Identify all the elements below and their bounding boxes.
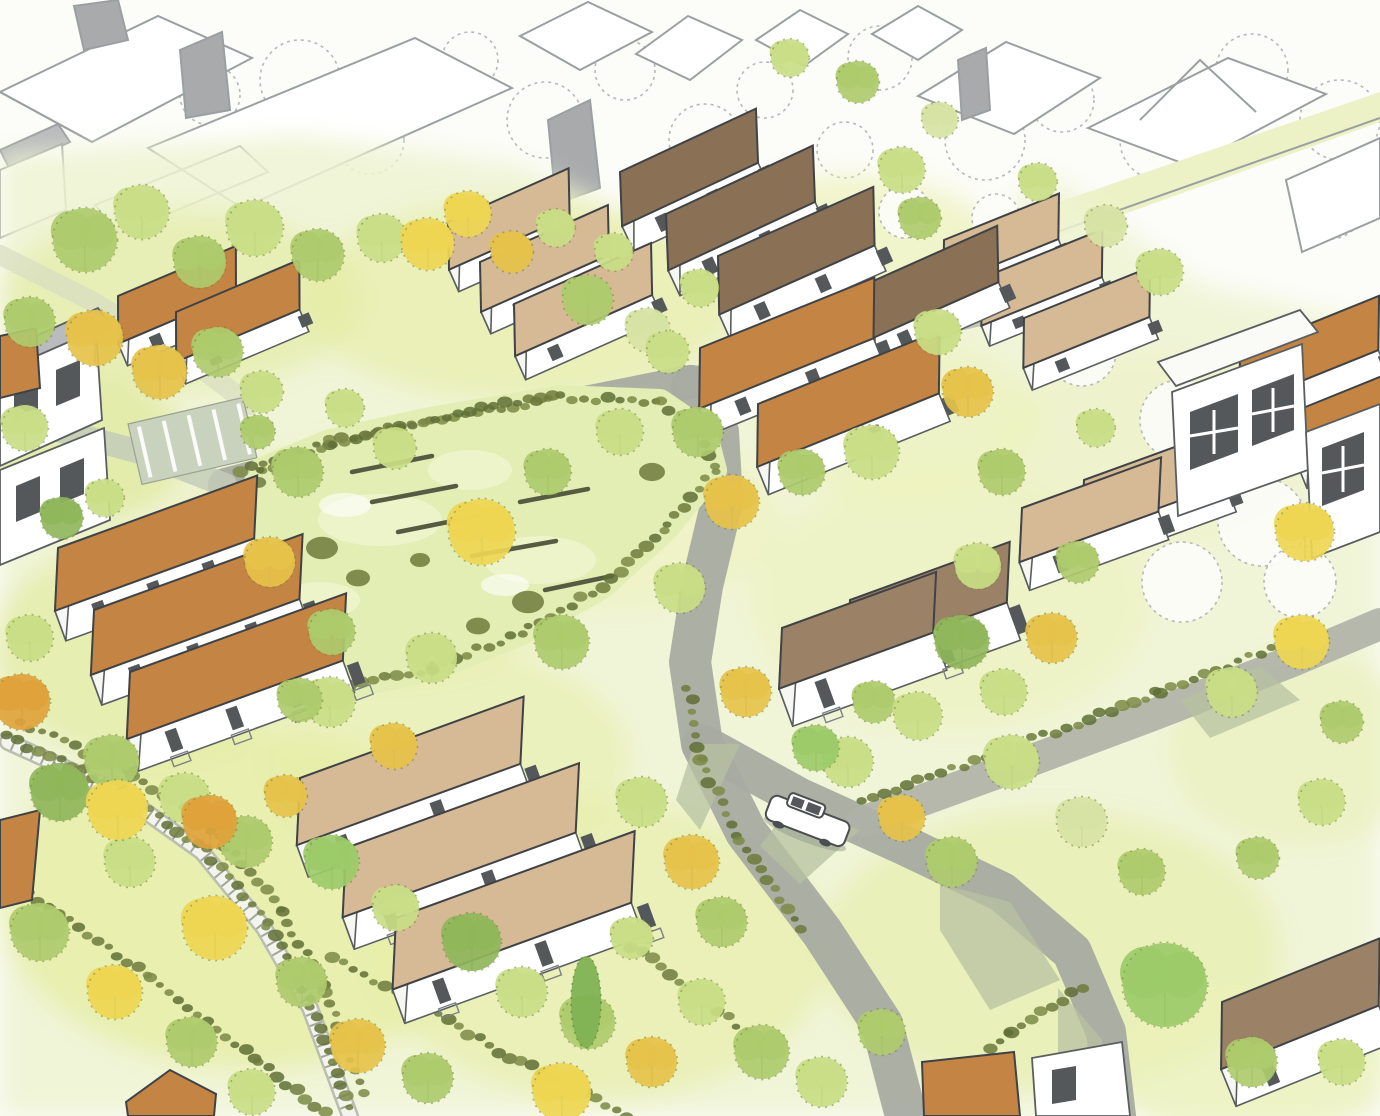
tree-canopy-lobe bbox=[1157, 254, 1182, 279]
hedge-dot bbox=[1177, 680, 1190, 689]
hedge-dot bbox=[251, 878, 263, 887]
hedge-dot bbox=[1141, 696, 1150, 702]
hedge-dot bbox=[156, 982, 164, 988]
hedge-dot bbox=[360, 971, 369, 977]
hedge-dot bbox=[216, 862, 229, 871]
tree-canopy-lobe bbox=[937, 106, 957, 126]
tree-canopy-lobe bbox=[813, 730, 838, 755]
green-hedge-dot bbox=[595, 582, 610, 593]
tree-canopy-lobe bbox=[879, 1014, 904, 1039]
green-hedge-dot bbox=[659, 527, 669, 534]
green-hedge-dot bbox=[588, 591, 598, 598]
tree-canopy-lobe bbox=[558, 1069, 590, 1101]
hedge-dot bbox=[38, 728, 46, 734]
green-hedge-dot bbox=[462, 652, 473, 660]
hedge-dot bbox=[1056, 997, 1069, 1006]
green-hedge-dot bbox=[638, 399, 649, 407]
hedge-dot bbox=[261, 924, 270, 931]
tree-canopy-lobe bbox=[329, 614, 354, 639]
green-hedge-dot bbox=[566, 396, 577, 404]
hedge-dot bbox=[324, 999, 335, 1007]
hedge-dot bbox=[681, 685, 691, 692]
lawn-white-patch bbox=[319, 493, 371, 517]
tree-canopy-lobe bbox=[477, 506, 513, 542]
tree-canopy-lobe bbox=[1339, 1044, 1364, 1069]
hedge-dot bbox=[49, 731, 58, 738]
hedge-dot bbox=[1060, 724, 1072, 733]
hedge-dot bbox=[692, 754, 708, 765]
hedge-dot bbox=[276, 907, 290, 917]
green-hedge-dot bbox=[579, 395, 589, 402]
hedge-dot bbox=[545, 390, 559, 400]
shrub bbox=[639, 463, 665, 481]
green-hedge-dot bbox=[621, 557, 635, 567]
hedge-dot bbox=[287, 931, 296, 937]
hedge-dot bbox=[182, 1004, 193, 1012]
green-hedge-dot bbox=[518, 630, 528, 637]
hedge-dot bbox=[947, 764, 956, 770]
hedge-dot bbox=[60, 737, 69, 744]
hedge-dot bbox=[645, 952, 660, 963]
tree-canopy-lobe bbox=[27, 620, 52, 645]
tree-canopy-lobe bbox=[251, 206, 282, 237]
hedge-dot bbox=[245, 461, 258, 471]
tree-canopy-lobe bbox=[787, 43, 808, 64]
hedge-dot bbox=[164, 989, 174, 996]
hedge-dot bbox=[1165, 682, 1177, 691]
sketch-tree bbox=[1142, 542, 1222, 622]
hedge-dot bbox=[339, 1090, 354, 1101]
hedge-dot bbox=[1050, 729, 1063, 738]
green-hedge-dot bbox=[601, 392, 616, 403]
hedge-dot bbox=[723, 1012, 735, 1020]
shrub bbox=[512, 591, 544, 613]
hedge-dot bbox=[269, 895, 280, 903]
tree-canopy-lobe bbox=[465, 196, 490, 221]
hedge-dot bbox=[485, 1042, 495, 1049]
green-hedge-dot bbox=[567, 602, 578, 610]
hedge-dot bbox=[1003, 1027, 1019, 1039]
hedge-dot bbox=[260, 885, 274, 895]
hedge-dot bbox=[1038, 730, 1048, 737]
green-hedge-dot bbox=[604, 573, 619, 584]
poplar-tree bbox=[571, 956, 601, 1048]
tree-canopy-lobe bbox=[393, 890, 418, 915]
hedge-dot bbox=[204, 856, 217, 866]
tree-canopy-lobe bbox=[468, 919, 500, 951]
hedge-dot bbox=[334, 1080, 347, 1089]
tree bbox=[531, 1062, 592, 1116]
hedge-dot bbox=[257, 910, 265, 916]
hedge-dot bbox=[369, 979, 378, 985]
lawn-light-patch bbox=[428, 450, 512, 490]
tree-canopy-lobe bbox=[342, 393, 363, 414]
hedge-dot bbox=[924, 773, 935, 781]
hedge-dot bbox=[590, 1093, 603, 1102]
hedge-dot bbox=[339, 438, 351, 446]
hedge-dot bbox=[890, 787, 902, 795]
hedge-dot bbox=[161, 821, 173, 830]
hedge-dot bbox=[689, 742, 704, 753]
hedge-dot bbox=[358, 1089, 369, 1097]
hedge-dot bbox=[791, 916, 799, 922]
hedge-dot bbox=[1064, 987, 1078, 997]
green-hedge-dot bbox=[662, 406, 676, 416]
tree-canopy-lobe bbox=[699, 984, 724, 1009]
hedge-dot bbox=[733, 836, 745, 845]
green-hedge-dot bbox=[573, 592, 587, 602]
hedge-dot bbox=[662, 969, 678, 980]
hedge-dot bbox=[349, 434, 363, 444]
tree-canopy-lobe bbox=[1139, 854, 1164, 879]
green-hedge-dot bbox=[497, 640, 505, 646]
bg-chimney-1 bbox=[74, 0, 128, 50]
hedge-dot bbox=[655, 963, 666, 971]
hedge-dot bbox=[303, 949, 313, 956]
hedge-dot bbox=[105, 944, 113, 950]
hedge-dot bbox=[1034, 1006, 1048, 1016]
tree-canopy-lobe bbox=[91, 316, 122, 347]
tree-canopy-lobe bbox=[545, 454, 570, 479]
tree-canopy-lobe bbox=[553, 213, 574, 234]
hedge-dot bbox=[1082, 714, 1097, 725]
hedge-dot bbox=[1256, 651, 1267, 659]
hedge-dot bbox=[968, 755, 982, 765]
tree-canopy-lobe bbox=[697, 273, 718, 294]
tree-canopy-lobe bbox=[1301, 509, 1333, 541]
hedge-dot bbox=[253, 1058, 264, 1066]
hedge-dot bbox=[1073, 722, 1084, 730]
hedge-dot bbox=[689, 720, 699, 727]
hedge-dot bbox=[56, 755, 66, 762]
hedge-dot bbox=[231, 881, 244, 890]
green-hedge-dot bbox=[505, 631, 516, 639]
bg-dormer-3 bbox=[958, 48, 990, 120]
green-hedge-dot bbox=[695, 486, 704, 493]
green-hedge-dot bbox=[379, 672, 391, 681]
hedge-dot bbox=[173, 996, 184, 1004]
green-hedge-dot bbox=[678, 503, 691, 513]
hedge-dot bbox=[220, 1033, 231, 1041]
tree-canopy-lobe bbox=[914, 697, 940, 723]
tree-canopy-lobe bbox=[799, 454, 824, 479]
hedge-dot bbox=[0, 731, 12, 740]
green-hedge-dot bbox=[700, 474, 710, 481]
tree-canopy-lobe bbox=[975, 548, 1000, 573]
hedge-dot bbox=[69, 740, 82, 749]
hedge-dot bbox=[688, 709, 697, 715]
tree-canopy-lobe bbox=[22, 410, 47, 435]
hedge-dot bbox=[263, 1063, 274, 1071]
hedge-dot bbox=[453, 409, 464, 417]
tree-canopy-lobe bbox=[255, 418, 274, 437]
hedge-dot bbox=[72, 923, 85, 932]
hedge-dot bbox=[292, 940, 304, 949]
tree-canopy-lobe bbox=[36, 909, 68, 941]
hedge-dot bbox=[523, 394, 535, 403]
shrub bbox=[346, 570, 370, 587]
hedge-dot bbox=[239, 1044, 254, 1055]
hedge-dot bbox=[327, 441, 338, 449]
hedge-dot bbox=[169, 827, 185, 838]
green-hedge-dot bbox=[663, 521, 672, 527]
hedge-dot bbox=[331, 1068, 345, 1078]
green-hedge-dot bbox=[389, 670, 404, 681]
hedge-dot bbox=[442, 414, 452, 421]
hedge-dot bbox=[718, 798, 729, 806]
hedge-dot bbox=[339, 959, 348, 966]
hedge-dot bbox=[281, 919, 293, 927]
hedge-dot bbox=[144, 973, 157, 983]
hedge-dot bbox=[700, 777, 715, 788]
hedge-dot bbox=[525, 1060, 540, 1071]
green-hedge-dot bbox=[524, 623, 533, 629]
hedge-dot bbox=[259, 460, 268, 466]
hedge-dot bbox=[236, 892, 249, 901]
hedge-dot bbox=[1189, 676, 1199, 683]
hedge-dot bbox=[474, 402, 488, 412]
hedge-dot bbox=[856, 797, 866, 804]
hedge-dot bbox=[1017, 1022, 1026, 1029]
hedge-dot bbox=[1244, 652, 1252, 658]
hedge-dot bbox=[934, 768, 947, 777]
tree-canopy-lobe bbox=[1001, 674, 1026, 699]
green-hedge-dot bbox=[630, 549, 643, 559]
hedge-dot bbox=[92, 937, 105, 946]
hedge-dot bbox=[155, 812, 164, 819]
orange-wedge-south bbox=[922, 1052, 1020, 1116]
hedge-dot bbox=[363, 432, 372, 438]
shrub bbox=[410, 553, 430, 567]
hedge-dot bbox=[138, 778, 148, 785]
hedge-dot bbox=[726, 821, 737, 829]
green-hedge-dot bbox=[483, 643, 495, 652]
hedge-dot bbox=[475, 1033, 486, 1041]
tree-canopy-lobe bbox=[114, 786, 147, 819]
hedge-dot bbox=[11, 735, 24, 745]
window bbox=[1052, 1066, 1076, 1104]
hedge-dot bbox=[417, 419, 429, 428]
hedge-dot bbox=[1026, 733, 1037, 741]
hedge-dot bbox=[774, 897, 784, 904]
hedge-dot bbox=[1025, 1015, 1039, 1025]
hedge-dot bbox=[132, 962, 146, 972]
hedge-dot bbox=[276, 941, 288, 949]
green-hedge-dot bbox=[556, 607, 565, 614]
hedge-dot bbox=[600, 1102, 610, 1109]
hedge-dot bbox=[42, 751, 56, 761]
hedge-dot bbox=[959, 764, 969, 771]
hedge-dot bbox=[230, 1042, 239, 1049]
shrub bbox=[306, 537, 338, 559]
green-hedge-dot bbox=[654, 396, 667, 405]
hedge-dot bbox=[454, 1023, 464, 1030]
hedge-dot bbox=[755, 865, 767, 873]
hedge-dot bbox=[1046, 1003, 1059, 1012]
hedge-dot bbox=[348, 966, 357, 973]
tree-canopy-lobe bbox=[297, 682, 321, 706]
tree-canopy-lobe bbox=[18, 680, 49, 711]
hedge-dot bbox=[290, 1084, 306, 1095]
hedge-dot bbox=[377, 981, 392, 992]
hedge-dot bbox=[702, 767, 710, 773]
green-hedge-dot bbox=[649, 534, 661, 543]
hedge-dot bbox=[430, 416, 440, 423]
tree-canopy-lobe bbox=[391, 728, 416, 753]
masterplan-illustration: Watercolour aerial masterplan illustrati… bbox=[0, 0, 1380, 1116]
green-hedge-dot bbox=[669, 511, 680, 519]
green-hedge-dot bbox=[712, 468, 721, 475]
hedge-dot bbox=[314, 1023, 327, 1033]
green-hedge-dot bbox=[471, 643, 482, 651]
hedge-dot bbox=[780, 904, 795, 915]
hedge-dot bbox=[406, 420, 416, 427]
hedge-dot bbox=[686, 694, 700, 704]
hedge-dot bbox=[311, 1012, 324, 1021]
tree-canopy-lobe bbox=[1093, 413, 1114, 434]
shrub bbox=[466, 618, 490, 635]
tree-canopy-lobe bbox=[1319, 784, 1344, 809]
hedge-dot bbox=[244, 868, 256, 877]
tree-canopy-lobe bbox=[249, 1074, 274, 1099]
hedge-dot bbox=[771, 885, 781, 892]
sketch-tree bbox=[817, 122, 873, 178]
green-hedge-dot bbox=[683, 492, 698, 503]
tree-canopy-lobe bbox=[617, 414, 642, 439]
hedge-dot bbox=[111, 952, 123, 961]
hedge-dot bbox=[497, 396, 513, 407]
tree-canopy-lobe bbox=[899, 800, 924, 825]
hedge-dot bbox=[82, 932, 93, 940]
hedge-dot bbox=[691, 732, 700, 739]
hedge-dot bbox=[145, 785, 159, 795]
tree-canopy-lobe bbox=[56, 769, 88, 801]
hedge-dot bbox=[268, 930, 284, 941]
hedge-dot bbox=[121, 959, 133, 968]
hedge-dot bbox=[248, 901, 257, 907]
hedge-dot bbox=[983, 1043, 997, 1053]
green-hedge-dot bbox=[627, 396, 637, 403]
hedge-dot bbox=[332, 1011, 340, 1017]
illustration-canvas: Watercolour aerial masterplan illustrati… bbox=[0, 0, 1380, 1116]
tree-canopy-lobe bbox=[935, 314, 960, 339]
hedge-dot bbox=[1077, 984, 1089, 993]
hedge-dot bbox=[996, 1038, 1005, 1044]
hedge-dot bbox=[1153, 688, 1168, 699]
hedge-dot bbox=[742, 847, 752, 854]
hedge-dot bbox=[316, 445, 326, 453]
green-hedge-dot bbox=[591, 398, 601, 405]
hedge-dot bbox=[355, 1079, 364, 1085]
tree-canopy-lobe bbox=[999, 454, 1024, 479]
hedge-dot bbox=[460, 1030, 475, 1041]
hedge-dot bbox=[795, 925, 807, 934]
hedge-dot bbox=[732, 1024, 741, 1030]
hedge-dot bbox=[759, 875, 773, 885]
hedge-dot bbox=[225, 873, 234, 880]
tree-canopy-lobe bbox=[899, 152, 924, 177]
hedge-dot bbox=[345, 1104, 353, 1110]
hedge-dot bbox=[1234, 658, 1242, 664]
hedge-dot bbox=[1093, 708, 1106, 717]
green-hedge-dot bbox=[615, 397, 624, 404]
tree-canopy-lobe bbox=[611, 237, 632, 258]
hedge-dot bbox=[513, 400, 522, 407]
hedge-dot bbox=[747, 854, 762, 865]
hedge-dot bbox=[325, 952, 341, 963]
hedge-dot bbox=[612, 1107, 622, 1114]
tree-canopy-lobe bbox=[102, 483, 123, 504]
hedge-dot bbox=[316, 1035, 331, 1046]
hedge-dot bbox=[722, 811, 730, 817]
hedge-dot bbox=[911, 774, 924, 783]
hedge-dot bbox=[1126, 697, 1141, 708]
tree-canopy-lobe bbox=[1035, 167, 1056, 188]
hedge-dot bbox=[712, 786, 725, 795]
